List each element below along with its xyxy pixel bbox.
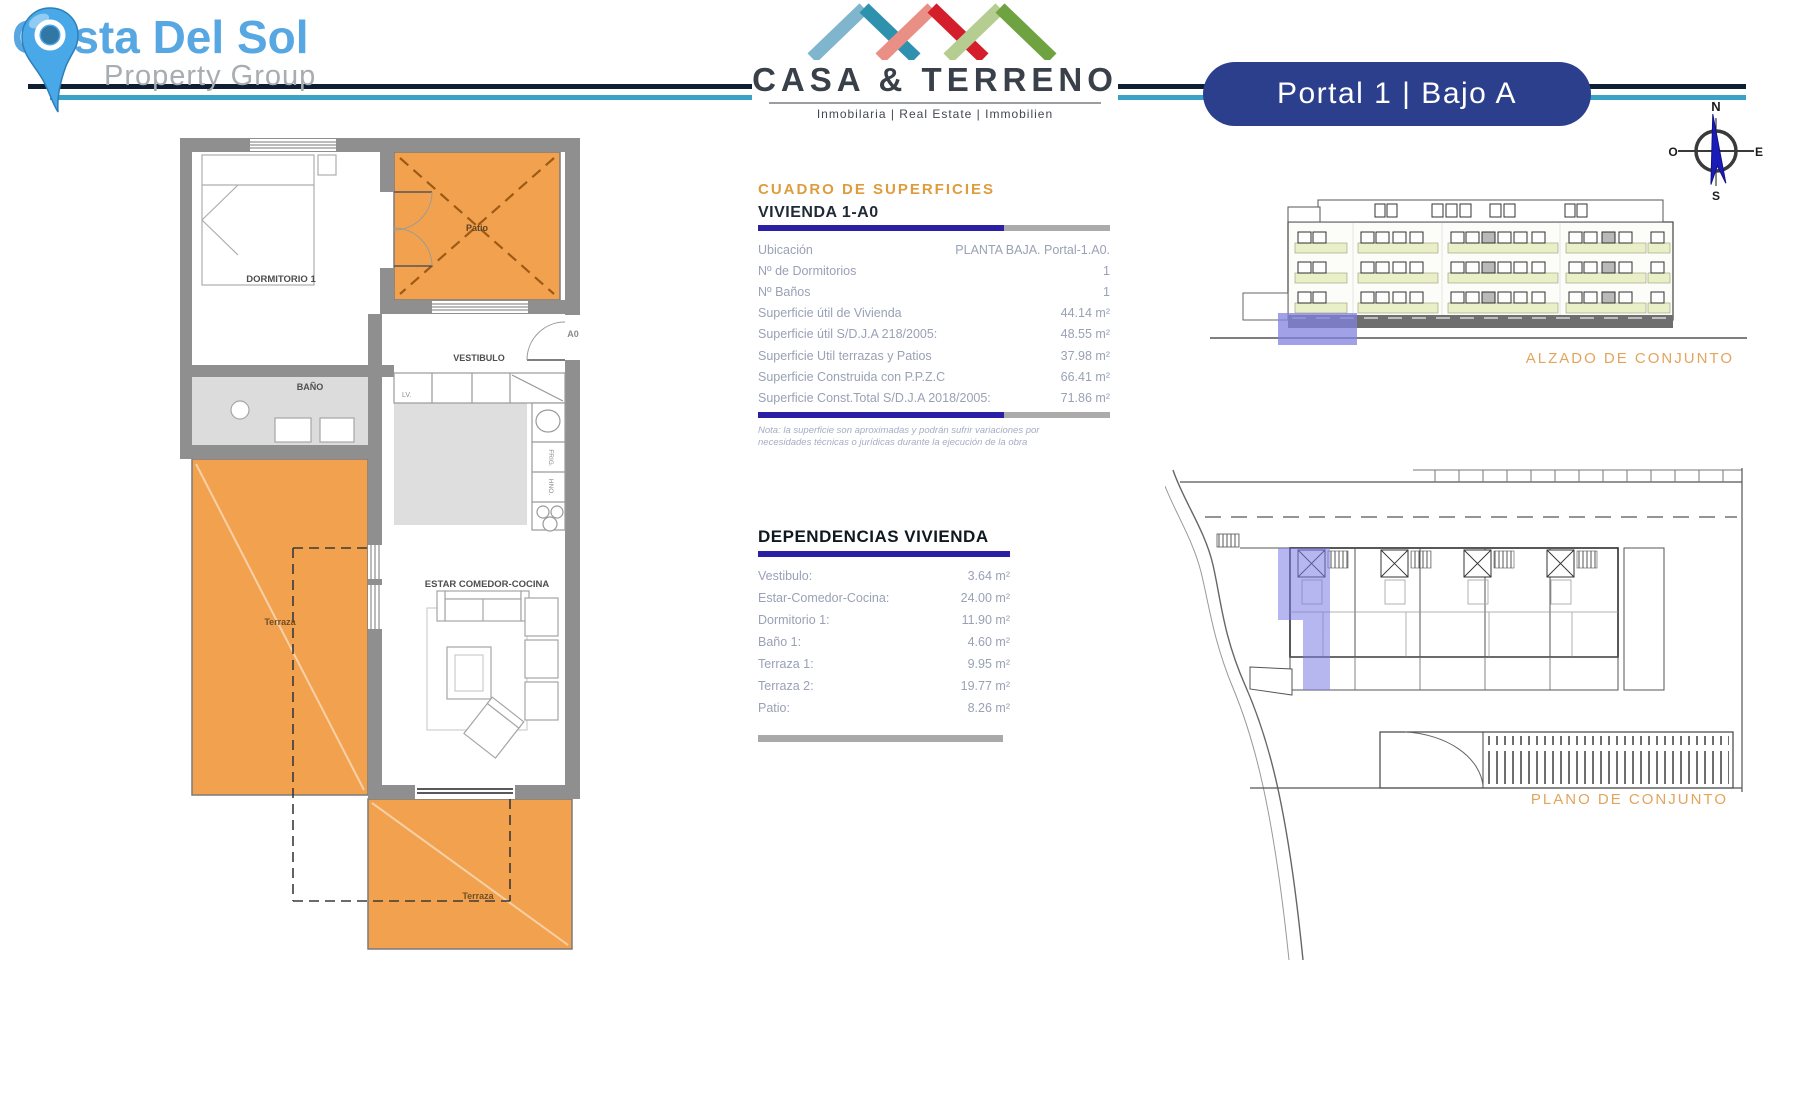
table-row: Nº de Dormitorios1: [758, 260, 1110, 281]
table-row: Dormitorio 1:11.90 m²: [758, 609, 1010, 631]
casa-roofs-icon: [800, 0, 1070, 60]
table-row: Superficie Const.Total S/D.J.A 2018/2005…: [758, 387, 1110, 408]
section-bar: [758, 225, 1110, 231]
surfaces-note: Nota: la superficie son aproximadas y po…: [758, 425, 1058, 449]
table-row: Superficie Util terrazas y Patios37.98 m…: [758, 345, 1110, 366]
compass-s: S: [1712, 189, 1720, 202]
table-row: Nº Baños1: [758, 281, 1110, 302]
apartment-floorplan: DORMITORIO 1 Patio BAÑO VESTIBULO A0 EST…: [180, 130, 610, 970]
room-label-estar: ESTAR COMEDOR-COCINA: [425, 579, 550, 590]
compass-w: O: [1668, 145, 1677, 159]
room-label-vestibulo: VESTIBULO: [453, 353, 505, 363]
costa-subtitle: Property Group: [104, 60, 316, 93]
page: Costa Del Sol Property Group CASA & TERR…: [0, 0, 1800, 1100]
compass-icon: N E O S: [1668, 98, 1764, 202]
surfaces-rows: UbicaciónPLANTA BAJA. Portal-1.A0. Nº de…: [758, 239, 1110, 409]
terrace-bottom-area: [368, 799, 572, 949]
surfaces-table: CUADRO DE SUPERFICIES VIVIENDA 1-A0 Ubic…: [758, 181, 1110, 449]
unit-highlight-elevation: [1278, 313, 1357, 345]
section-bar: [758, 412, 1110, 418]
room-label-terraza-left: Terraza: [264, 617, 296, 627]
map-pin-icon: [20, 4, 86, 116]
table-row: Terraza 2:19.77 m²: [758, 675, 1010, 697]
table-row: Terraza 1:9.95 m²: [758, 653, 1010, 675]
room-label-dormitorio: DORMITORIO 1: [246, 274, 316, 285]
room-label-bano: BAÑO: [297, 382, 324, 392]
table-row: Superficie Construida con P.P.Z.C66.41 m…: [758, 366, 1110, 387]
table-row: Superficie útil S/D.J.A 218/2005:48.55 m…: [758, 324, 1110, 345]
kitchen-label-lv: LV.: [402, 392, 411, 399]
table-row: Superficie útil de Vivienda44.14 m²: [758, 303, 1110, 324]
unit-door-label: A0: [567, 329, 579, 339]
table-row: Baño 1:4.60 m²: [758, 631, 1010, 653]
table-footer-bar: [758, 735, 1003, 742]
kitchen-floor: [394, 403, 527, 525]
casa-name: CASA & TERRENO: [752, 61, 1118, 99]
kitchen-label-frig: FRIG.: [547, 449, 554, 467]
elevation-label: ALZADO DE CONJUNTO: [1526, 350, 1734, 367]
kitchen-label-horno: HNO.: [547, 479, 554, 495]
dependencies-table: DEPENDENCIAS VIVIENDA Vestibulo:3.64 m² …: [758, 527, 1010, 742]
entrance-door: [527, 322, 565, 360]
surfaces-section-title: VIVIENDA 1-A0: [758, 204, 1110, 222]
table-row: Patio:8.26 m²: [758, 697, 1010, 719]
compass-e: E: [1755, 145, 1763, 159]
casa-divider: [769, 102, 1101, 104]
costa-del-sol-logo: Costa Del Sol Property Group: [0, 0, 340, 130]
unit-badge: Portal 1 | Bajo A: [1203, 62, 1591, 126]
table-row: Estar-Comedor-Cocina:24.00 m²: [758, 587, 1010, 609]
room-label-terraza-bottom: Terraza: [462, 891, 494, 901]
site-plan: [1165, 460, 1765, 970]
terrace-left-area: [192, 459, 368, 795]
table-row: UbicaciónPLANTA BAJA. Portal-1.A0.: [758, 239, 1110, 260]
dependencies-rows: Vestibulo:3.64 m² Estar-Comedor-Cocina:2…: [758, 565, 1010, 719]
table-row: Vestibulo:3.64 m²: [758, 565, 1010, 587]
casa-tagline: Inmobilaria | Real Estate | Immobilien: [817, 107, 1053, 121]
bed: [202, 155, 336, 285]
dependencies-title: DEPENDENCIAS VIVIENDA: [758, 527, 1010, 547]
living-furniture: [427, 591, 558, 758]
room-label-patio: Patio: [466, 223, 489, 233]
siteplan-label: PLANO DE CONJUNTO: [1531, 791, 1728, 808]
section-bar: [758, 551, 1010, 557]
compass-n: N: [1711, 99, 1720, 114]
surfaces-title: CUADRO DE SUPERFICIES: [758, 181, 1110, 198]
casa-terreno-logo: CASA & TERRENO Inmobilaria | Real Estate…: [752, 0, 1118, 134]
